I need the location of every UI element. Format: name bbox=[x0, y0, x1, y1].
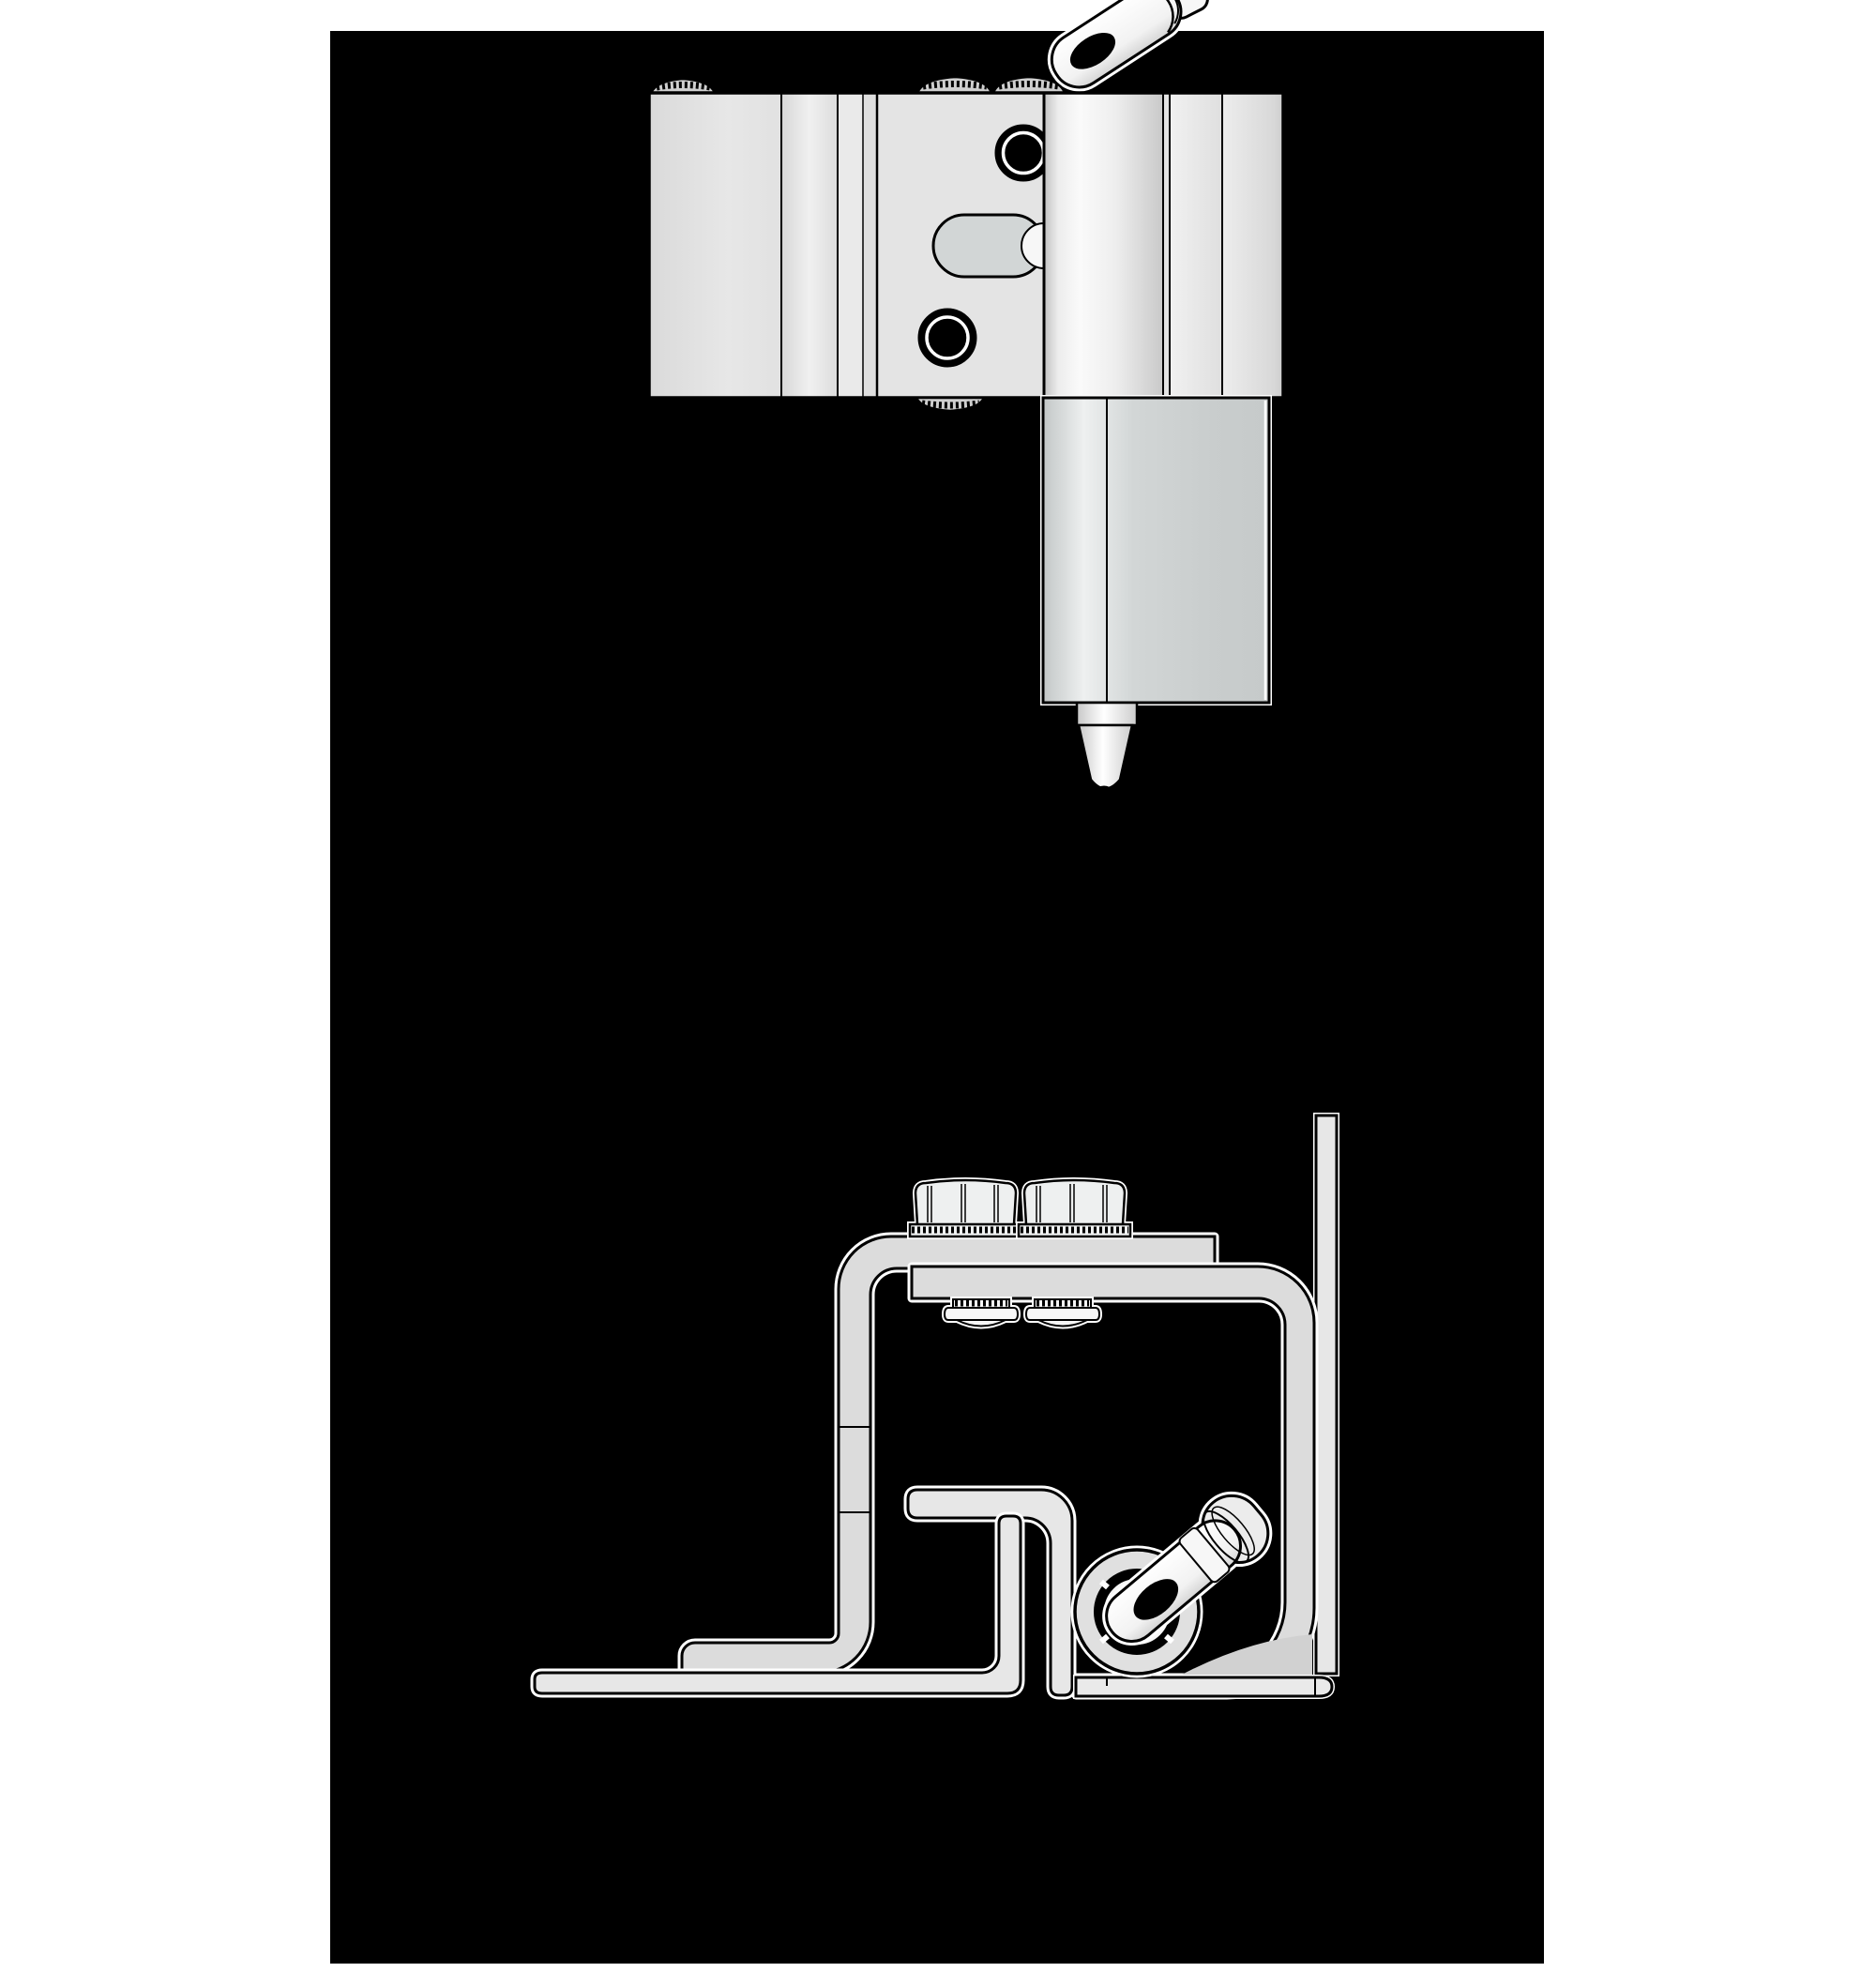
screw-collar-right-icon bbox=[1026, 1299, 1099, 1327]
hinge-body-band-1 bbox=[781, 93, 838, 398]
knurled-nut-right-icon bbox=[1019, 1180, 1130, 1236]
base-foot-plate bbox=[1076, 1677, 1332, 1696]
wall-plate-right bbox=[1316, 1115, 1337, 1674]
hinge-body-band-3 bbox=[863, 93, 877, 398]
slotted-hole-with-pin bbox=[933, 215, 1044, 277]
hinge-leaf-band-1 bbox=[1170, 93, 1222, 398]
screw-collar-left-icon bbox=[945, 1299, 1018, 1327]
lower-knuckle-bar bbox=[1043, 398, 1269, 703]
countersunk-hole-upper bbox=[996, 126, 1051, 180]
hinge-knuckle-cylinder bbox=[1044, 93, 1163, 398]
hinge-body-band-2 bbox=[838, 93, 863, 398]
hinge-leaf-band-2 bbox=[1222, 93, 1283, 398]
technical-drawing bbox=[0, 0, 1876, 1972]
knurled-nut-left-icon bbox=[910, 1180, 1021, 1236]
countersunk-hole-lower bbox=[919, 310, 976, 366]
hinge-body-left-face bbox=[649, 93, 781, 398]
drawing-page bbox=[0, 0, 1876, 1972]
pin-tip-point bbox=[1097, 786, 1112, 795]
pin-neck bbox=[1077, 703, 1137, 725]
